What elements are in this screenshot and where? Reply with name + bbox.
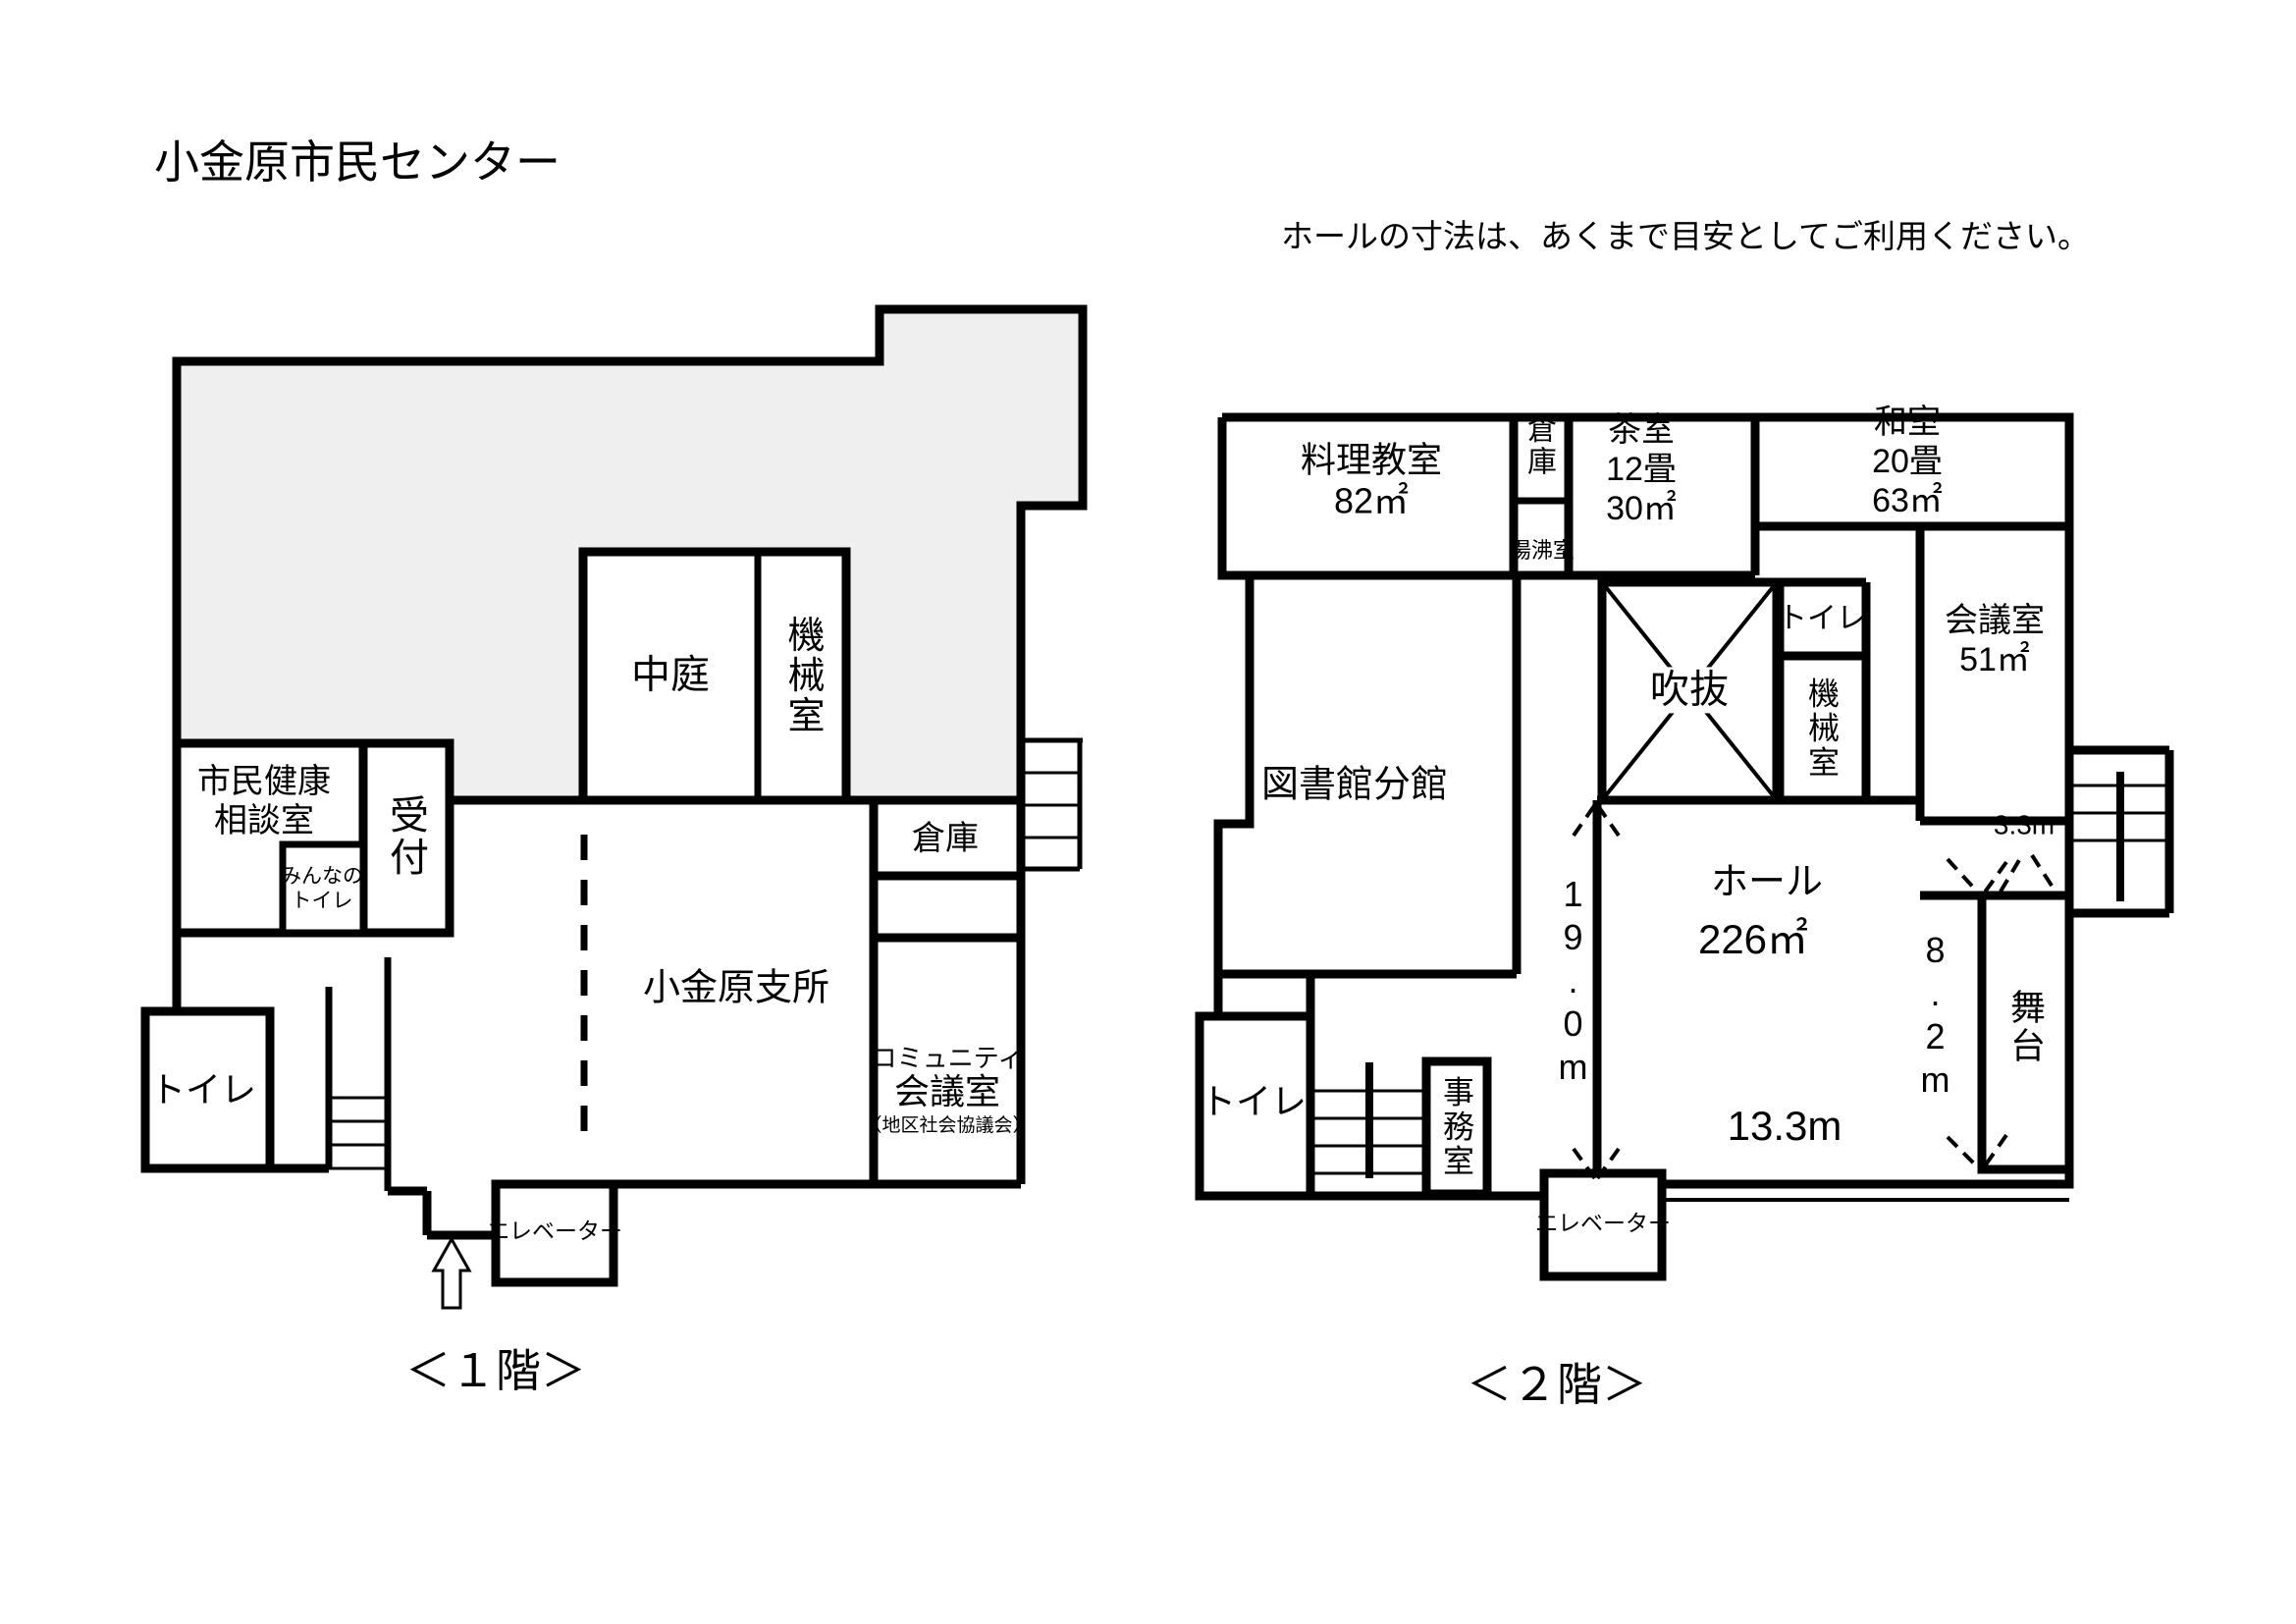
entrance-arrow-icon (434, 1239, 469, 1308)
hall-area-value: 226㎡ (1698, 915, 1808, 964)
room-label-community-line1: コミュニティ (872, 1044, 1023, 1074)
stage-depth-dimension: 8.2m (1917, 930, 1952, 1103)
room-label-storage-f2: 倉庫 (1523, 413, 1553, 478)
room-label-courtyard: 中庭 (631, 652, 710, 698)
floor1-stairs (329, 957, 388, 1191)
room-label-health-room: 市民健康 相談室 (197, 762, 331, 840)
room-label-storage-f1: 倉庫 (912, 819, 979, 858)
floor2-right-stairs (2069, 750, 2169, 913)
stage-width-dimension: 3.3m (1994, 808, 2055, 840)
page-title: 小金原市民センター (154, 135, 561, 189)
hall-width-dimension: 13.3m (1728, 1102, 1842, 1151)
floor2-walls (1200, 417, 2169, 1276)
room-label-everyone-toilet: みんなの トイレ (281, 865, 363, 914)
room-label-toilet-upper-f2: トイレ (1778, 601, 1866, 635)
hall-depth-dimension: 19.0m (1555, 874, 1590, 1090)
room-label-tea-room: 茶室 12畳 30㎡ (1606, 410, 1677, 528)
room-label-elevator-f1: エレベーター (487, 1218, 622, 1244)
room-label-stage: 舞台 (2007, 989, 2043, 1065)
room-label-community-line3: （地区社会協議会） (863, 1115, 1031, 1137)
room-label-library-branch: 図書館分館 (1261, 764, 1448, 808)
floorplan-page: 小金原市民センター ホールの寸法は、あくまで目安としてご利用ください。 中庭 機… (0, 0, 2296, 1624)
room-label-toilet-lower-f2: トイレ (1201, 1081, 1307, 1122)
room-label-elevator-f2: エレベーター (1535, 1210, 1671, 1236)
room-label-office: 事務室 (1441, 1076, 1472, 1179)
room-label-branch-office: 小金原支所 (643, 967, 829, 1011)
floor2-caption: ＜２階＞ (1467, 1358, 1647, 1411)
floor1-right-stairs (1021, 740, 1083, 869)
room-label-machine-room-f2: 機械室 (1806, 677, 1838, 781)
room-label-machine-room-f1: 機械室 (783, 616, 821, 736)
room-label-cooking-room: 料理教室 82㎡ (1301, 440, 1442, 523)
floor2-left-stairs (1310, 974, 1423, 1196)
hall-dimension-note: ホールの寸法は、あくまで目安としてご利用ください。 (1281, 218, 2090, 256)
room-label-toilet-f1: トイレ (150, 1069, 256, 1110)
room-label-kettle-room: 湯沸室 (1510, 538, 1575, 564)
floor1-caption: ＜１階＞ (405, 1344, 586, 1397)
room-label-reception: 受付 (386, 794, 425, 879)
room-label-japanese-room: 和室 20畳 63㎡ (1872, 403, 1943, 520)
room-label-community-line2: 会議室 (894, 1071, 1000, 1112)
room-label-meeting-room: 会議室 51㎡ (1945, 601, 2045, 679)
room-label-atrium: 吹抜 (1644, 667, 1735, 713)
room-label-hall: ホール (1711, 861, 1823, 905)
